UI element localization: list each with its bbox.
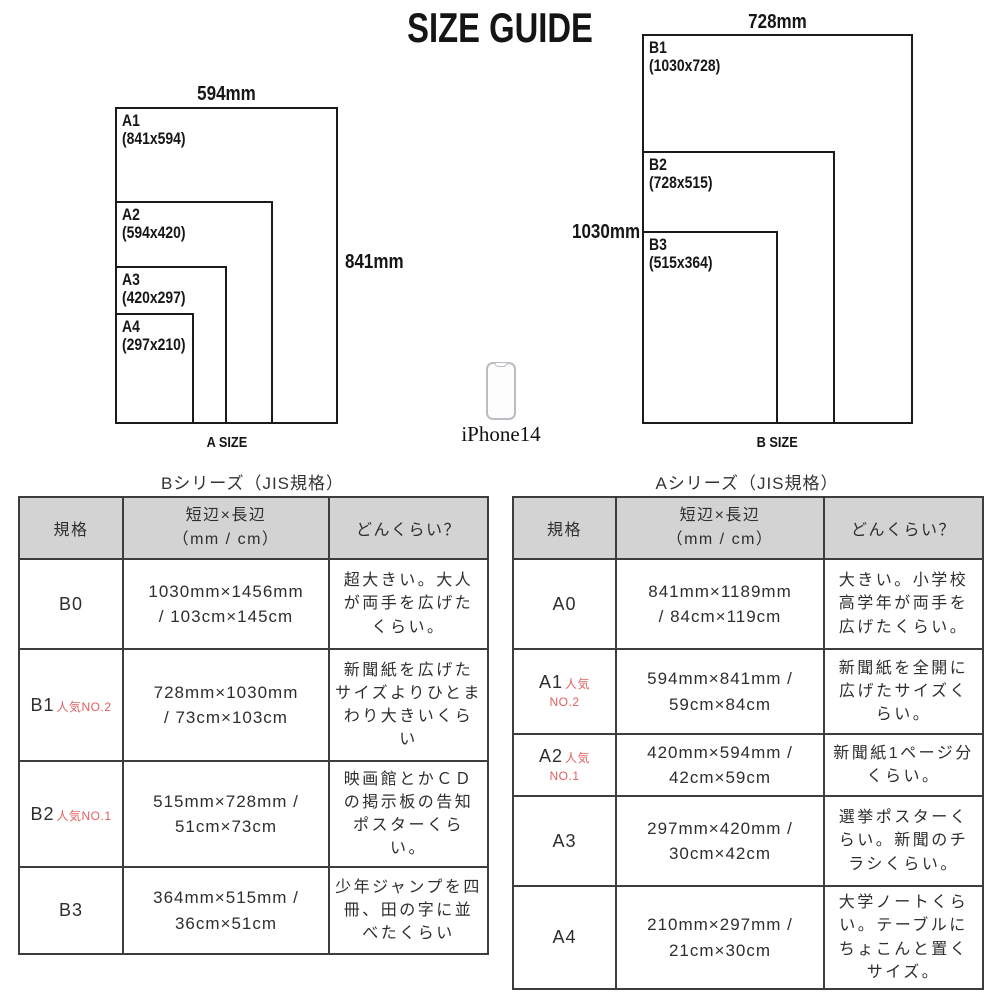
header-dimensions: 短辺×長辺 （mm / cm）	[616, 497, 824, 559]
description-cell: 新聞紙1ページ分くらい。	[824, 734, 983, 796]
table-header-row: 規格 短辺×長辺 （mm / cm） どんくらい？	[513, 497, 983, 559]
popularity-badge: 人気NO.2	[57, 700, 112, 714]
dimensions-cell: 515mm×728mm /51cm×73cm	[123, 761, 329, 867]
dimensions-cell: 728mm×1030mm/ 73cm×103cm	[123, 649, 329, 761]
a-series-table-block: Aシリーズ（JIS規格） 規格 短辺×長辺 （mm / cm） どんくらい？ A…	[512, 469, 982, 990]
size-cell: B1人気NO.2	[19, 649, 123, 761]
description-cell: 大きい。小学校高学年が両手を広げたくらい。	[824, 559, 983, 649]
dimensions-cell: 210mm×297mm /21cm×30cm	[616, 886, 824, 989]
a-series-table-title: Aシリーズ（JIS規格）	[512, 469, 982, 496]
a-series-table: 規格 短辺×長辺 （mm / cm） どんくらい？ A0 841mm×1189m…	[512, 496, 984, 990]
iphone-notch-icon	[495, 363, 508, 367]
iphone-icon	[486, 362, 516, 420]
sheet-a3-label: A3 (420x297)	[122, 271, 186, 308]
table-row: A1人気NO.2 594mm×841mm /59cm×84cm 新聞紙を全開に広…	[513, 649, 983, 734]
table-header-row: 規格 短辺×長辺 （mm / cm） どんくらい？	[19, 497, 488, 559]
b-series-table-block: Bシリーズ（JIS規格） 規格 短辺×長辺 （mm / cm） どんくらい？ B…	[18, 469, 487, 955]
dimensions-cell: 1030mm×1456mm/ 103cm×145cm	[123, 559, 329, 649]
header-dimensions: 短辺×長辺 （mm / cm）	[123, 497, 329, 559]
description-cell: 少年ジャンプを四冊、田の字に並べたくらい	[329, 867, 488, 954]
size-cell: A1人気NO.2	[513, 649, 616, 734]
size-guide-page: SIZE GUIDE 594mm A1 (841x594) A2 (594x42…	[0, 0, 1000, 1000]
a-size-caption: A SIZE	[115, 434, 338, 451]
header-size: 規格	[513, 497, 616, 559]
header-description: どんくらい？	[824, 497, 983, 559]
size-cell: B2人気NO.1	[19, 761, 123, 867]
table-row: A0 841mm×1189mm/ 84cm×119cm 大きい。小学校高学年が両…	[513, 559, 983, 649]
sheet-a4: A4 (297x210)	[115, 313, 194, 424]
table-row: A4 210mm×297mm /21cm×30cm 大学ノートくらい。テーブルに…	[513, 886, 983, 989]
header-size: 規格	[19, 497, 123, 559]
b-size-side-dimension: 1030mm	[560, 221, 638, 244]
popularity-badge-line2: NO.2	[514, 693, 615, 711]
popularity-badge: 人気	[565, 751, 590, 765]
iphone-label: iPhone14	[436, 422, 566, 447]
table-row: B2人気NO.1 515mm×728mm /51cm×73cm 映画館とかＣＤの…	[19, 761, 488, 867]
b-series-table-title: Bシリーズ（JIS規格）	[18, 469, 487, 496]
b-size-top-dimension: 728mm	[642, 11, 913, 34]
b-size-caption: B SIZE	[642, 434, 913, 451]
table-row: A3 297mm×420mm /30cm×42cm 選挙ポスターくらい。新聞のチ…	[513, 796, 983, 886]
popularity-badge-line2: NO.1	[514, 767, 615, 785]
table-row: A2人気NO.1 420mm×594mm /42cm×59cm 新聞紙1ページ分…	[513, 734, 983, 796]
size-cell: A4	[513, 886, 616, 989]
table-row: B0 1030mm×1456mm/ 103cm×145cm 超大きい。大人が両手…	[19, 559, 488, 649]
size-cell: A3	[513, 796, 616, 886]
header-description: どんくらい？	[329, 497, 488, 559]
a-size-side-dimension: 841mm	[345, 251, 414, 274]
sheet-a4-label: A4 (297x210)	[122, 318, 186, 355]
dimensions-cell: 841mm×1189mm/ 84cm×119cm	[616, 559, 824, 649]
dimensions-cell: 594mm×841mm /59cm×84cm	[616, 649, 824, 734]
page-title-text: SIZE GUIDE	[407, 4, 593, 52]
description-cell: 新聞紙を全開に広げたサイズくらい。	[824, 649, 983, 734]
description-cell: 映画館とかＣＤの掲示板の告知ポスターくらい。	[329, 761, 488, 867]
popularity-badge: 人気NO.1	[57, 809, 112, 823]
dimensions-cell: 297mm×420mm /30cm×42cm	[616, 796, 824, 886]
sheet-b1-label: B1 (1030x728)	[649, 39, 720, 76]
b-series-table: 規格 短辺×長辺 （mm / cm） どんくらい？ B0 1030mm×1456…	[18, 496, 489, 955]
description-cell: 新聞紙を広げたサイズよりひとまわり大きいくらい	[329, 649, 488, 761]
sheet-a2-label: A2 (594x420)	[122, 206, 186, 243]
size-cell: B0	[19, 559, 123, 649]
description-cell: 超大きい。大人が両手を広げたくらい。	[329, 559, 488, 649]
size-cell: A2人気NO.1	[513, 734, 616, 796]
sheet-b3: B3 (515x364)	[642, 231, 778, 424]
sheet-b3-label: B3 (515x364)	[649, 236, 713, 273]
size-cell: A0	[513, 559, 616, 649]
dimensions-cell: 364mm×515mm /36cm×51cm	[123, 867, 329, 954]
description-cell: 大学ノートくらい。テーブルにちょこんと置くサイズ。	[824, 886, 983, 989]
sheet-a1-label: A1 (841x594)	[122, 112, 186, 149]
description-cell: 選挙ポスターくらい。新聞のチラシくらい。	[824, 796, 983, 886]
sheet-b2-label: B2 (728x515)	[649, 156, 713, 193]
table-row: B3 364mm×515mm /36cm×51cm 少年ジャンプを四冊、田の字に…	[19, 867, 488, 954]
table-row: B1人気NO.2 728mm×1030mm/ 73cm×103cm 新聞紙を広げ…	[19, 649, 488, 761]
dimensions-cell: 420mm×594mm /42cm×59cm	[616, 734, 824, 796]
size-cell: B3	[19, 867, 123, 954]
a-size-top-dimension: 594mm	[115, 83, 338, 106]
popularity-badge: 人気	[565, 677, 590, 691]
